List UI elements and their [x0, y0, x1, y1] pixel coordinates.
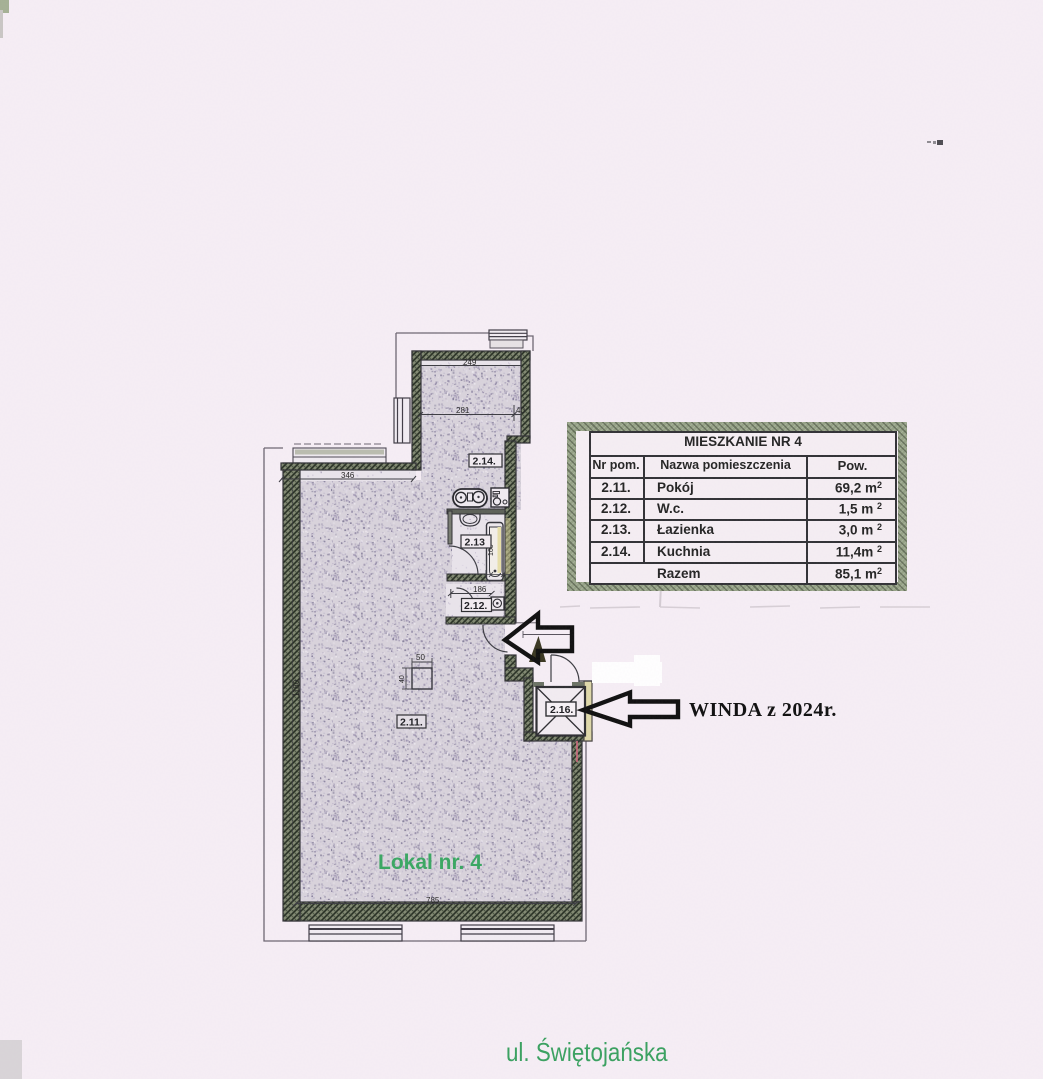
svg-text:40: 40 [516, 406, 525, 415]
svg-text:2.13: 2.13 [465, 537, 486, 549]
svg-text:2.16.: 2.16. [550, 704, 573, 716]
svg-text:346: 346 [341, 471, 355, 480]
svg-text:1180: 1180 [292, 679, 301, 697]
svg-text:785: 785 [426, 896, 440, 905]
svg-text:2.11.: 2.11. [400, 717, 423, 729]
svg-text:2.14.: 2.14. [473, 456, 496, 468]
svg-text:186: 186 [473, 585, 487, 594]
svg-text:281: 281 [456, 406, 470, 415]
svg-text:40: 40 [399, 675, 406, 683]
svg-text:249: 249 [463, 358, 477, 367]
svg-text:50: 50 [416, 653, 425, 662]
svg-text:2.12.: 2.12. [464, 600, 487, 612]
